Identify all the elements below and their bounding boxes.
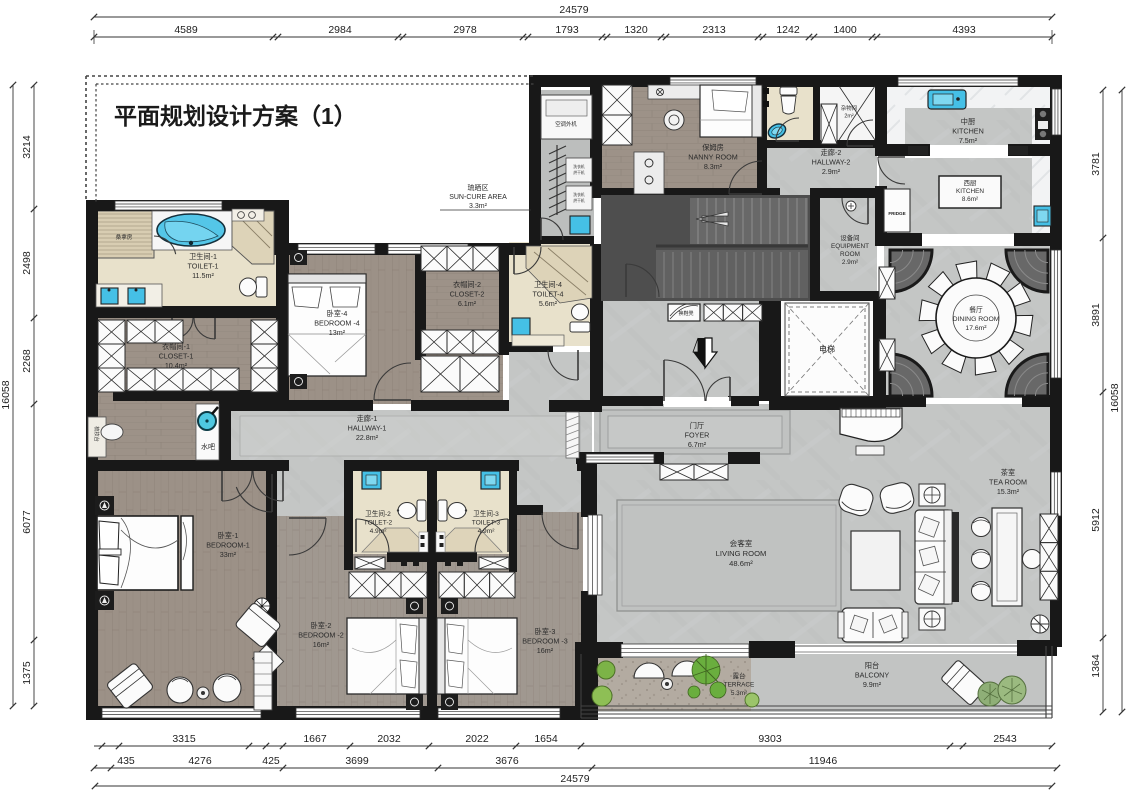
svg-text:衣帽间-2: 衣帽间-2 — [453, 280, 481, 289]
svg-text:BEDROOM -4: BEDROOM -4 — [314, 318, 360, 327]
svg-text:16m²: 16m² — [313, 640, 330, 649]
svg-text:餐厅: 餐厅 — [969, 305, 983, 314]
svg-text:门厅: 门厅 — [690, 421, 704, 430]
svg-text:6.7m²: 6.7m² — [688, 440, 707, 449]
svg-text:中厨: 中厨 — [961, 117, 975, 126]
svg-text:HALLWAY-1: HALLWAY-1 — [348, 423, 387, 432]
svg-text:4589: 4589 — [174, 24, 198, 36]
svg-text:5.3m²: 5.3m² — [731, 690, 747, 697]
svg-text:425: 425 — [262, 755, 280, 767]
svg-text:1375: 1375 — [21, 661, 33, 685]
svg-text:2978: 2978 — [453, 24, 477, 36]
svg-text:卧室-3: 卧室-3 — [535, 627, 556, 636]
svg-text:烘干机: 烘干机 — [573, 170, 585, 175]
svg-text:13m²: 13m² — [329, 328, 346, 337]
svg-text:KITCHEN: KITCHEN — [956, 188, 984, 195]
svg-text:平面规划设计方案（1）: 平面规划设计方案（1） — [114, 103, 357, 129]
svg-text:空调外机: 空调外机 — [555, 120, 577, 128]
svg-text:烘干机: 烘干机 — [573, 198, 585, 203]
svg-text:2022: 2022 — [465, 733, 489, 745]
svg-text:435: 435 — [117, 755, 135, 767]
svg-text:24579: 24579 — [559, 4, 588, 16]
svg-text:卫生间-2: 卫生间-2 — [365, 509, 391, 518]
svg-text:水吧: 水吧 — [201, 442, 215, 451]
svg-text:1364: 1364 — [1090, 654, 1102, 678]
svg-text:FOYER: FOYER — [685, 430, 710, 439]
svg-text:4393: 4393 — [952, 24, 976, 36]
svg-text:琉晒区: 琉晒区 — [468, 183, 489, 192]
svg-text:9303: 9303 — [758, 733, 782, 745]
svg-text:桑拿房: 桑拿房 — [116, 233, 133, 241]
svg-text:3214: 3214 — [21, 135, 33, 159]
svg-text:SUN-CURE AREA: SUN-CURE AREA — [449, 194, 507, 201]
svg-text:24579: 24579 — [560, 773, 589, 785]
svg-text:1400: 1400 — [833, 24, 857, 36]
svg-text:EQUIPMENT: EQUIPMENT — [831, 243, 869, 250]
svg-text:3781: 3781 — [1090, 152, 1102, 176]
svg-text:茶室: 茶室 — [1001, 468, 1015, 477]
svg-text:TERRACE: TERRACE — [724, 681, 755, 688]
svg-text:露台: 露台 — [733, 671, 746, 680]
svg-text:16058: 16058 — [0, 380, 12, 409]
svg-text:5912: 5912 — [1090, 508, 1102, 532]
svg-text:BEDROOM-1: BEDROOM-1 — [206, 540, 250, 549]
svg-text:TOILET-2: TOILET-2 — [364, 520, 393, 527]
svg-text:洗衣机: 洗衣机 — [573, 192, 585, 197]
svg-text:2498: 2498 — [21, 251, 33, 275]
svg-text:1667: 1667 — [303, 733, 327, 745]
svg-text:卫生间-1: 卫生间-1 — [189, 252, 217, 261]
svg-text:15.3m²: 15.3m² — [997, 487, 1020, 496]
svg-text:CLOSET-2: CLOSET-2 — [450, 289, 485, 298]
svg-text:TOILET-3: TOILET-3 — [472, 520, 501, 527]
svg-text:电梯: 电梯 — [819, 344, 835, 354]
svg-text:48.6m²: 48.6m² — [729, 559, 753, 568]
svg-text:1320: 1320 — [624, 24, 648, 36]
svg-text:4.9m²: 4.9m² — [478, 528, 496, 535]
svg-text:16m²: 16m² — [537, 646, 554, 655]
svg-text:FRIDGE: FRIDGE — [888, 211, 905, 216]
svg-text:9.9m²: 9.9m² — [863, 680, 882, 689]
svg-text:1654: 1654 — [534, 733, 558, 745]
svg-text:2543: 2543 — [993, 733, 1017, 745]
svg-text:KITCHEN: KITCHEN — [952, 126, 984, 135]
svg-text:CLOSET-1: CLOSET-1 — [159, 351, 194, 360]
svg-text:6.1m²: 6.1m² — [458, 299, 477, 308]
svg-text:保姆房: 保姆房 — [702, 143, 724, 152]
svg-text:洗衣机: 洗衣机 — [573, 164, 585, 169]
svg-text:2m²: 2m² — [844, 114, 853, 120]
svg-text:8.6m²: 8.6m² — [962, 196, 978, 203]
svg-text:2313: 2313 — [702, 24, 726, 36]
svg-text:4.9m²: 4.9m² — [370, 528, 388, 535]
svg-text:3891: 3891 — [1090, 303, 1102, 327]
svg-text:BALCONY: BALCONY — [855, 670, 890, 679]
svg-text:换鞋凳: 换鞋凳 — [678, 310, 693, 317]
svg-text:2.9m²: 2.9m² — [842, 259, 858, 266]
svg-text:卧室-1: 卧室-1 — [218, 531, 239, 540]
svg-text:走廊-1: 走廊-1 — [357, 414, 378, 423]
svg-text:2.9m²: 2.9m² — [822, 167, 841, 176]
svg-text:11.5m²: 11.5m² — [192, 271, 214, 280]
svg-text:3676: 3676 — [495, 755, 519, 767]
svg-text:会客室: 会客室 — [730, 538, 753, 548]
svg-text:BEDROOM -2: BEDROOM -2 — [298, 630, 344, 639]
svg-text:走廊-2: 走廊-2 — [821, 148, 842, 157]
svg-text:10.4m²: 10.4m² — [165, 361, 188, 370]
svg-text:2032: 2032 — [377, 733, 401, 745]
svg-text:2268: 2268 — [21, 349, 33, 373]
svg-text:设备间: 设备间 — [840, 233, 859, 242]
svg-text:3315: 3315 — [172, 733, 196, 745]
svg-text:3.3m²: 3.3m² — [469, 203, 488, 210]
svg-text:17.6m²: 17.6m² — [965, 325, 987, 332]
svg-text:TEA ROOM: TEA ROOM — [989, 477, 1027, 486]
svg-text:6077: 6077 — [21, 510, 33, 534]
svg-text:BEDROOM -3: BEDROOM -3 — [522, 636, 568, 645]
svg-text:16058: 16058 — [1109, 383, 1121, 412]
svg-text:1793: 1793 — [555, 24, 579, 36]
svg-text:梳妆台: 梳妆台 — [93, 426, 101, 442]
svg-text:4276: 4276 — [188, 755, 212, 767]
svg-text:卫生间-3: 卫生间-3 — [473, 509, 499, 518]
svg-text:TOILET-1: TOILET-1 — [187, 261, 218, 270]
svg-text:5.6m²: 5.6m² — [539, 299, 558, 308]
svg-text:DINING ROOM: DINING ROOM — [953, 316, 1000, 323]
svg-text:33m²: 33m² — [220, 550, 237, 559]
svg-text:2984: 2984 — [328, 24, 352, 36]
svg-text:HALLWAY-2: HALLWAY-2 — [812, 157, 851, 166]
svg-text:卫生间-4: 卫生间-4 — [534, 280, 562, 289]
svg-text:ROOM: ROOM — [840, 251, 860, 258]
svg-text:阳台: 阳台 — [865, 661, 879, 670]
svg-text:TOILET-4: TOILET-4 — [532, 289, 563, 298]
svg-text:11946: 11946 — [809, 755, 838, 767]
svg-text:1242: 1242 — [776, 24, 800, 36]
svg-text:卧室-2: 卧室-2 — [311, 621, 332, 630]
svg-text:卧室-4: 卧室-4 — [327, 309, 348, 318]
svg-text:LIVING ROOM: LIVING ROOM — [716, 549, 767, 558]
svg-text:衣帽间-1: 衣帽间-1 — [162, 342, 190, 351]
svg-text:3699: 3699 — [345, 755, 369, 767]
svg-text:杂物间: 杂物间 — [841, 104, 857, 112]
svg-text:7.5m²: 7.5m² — [959, 136, 978, 145]
svg-text:22.8m²: 22.8m² — [356, 433, 379, 442]
svg-text:西厨: 西厨 — [964, 179, 977, 187]
svg-text:NANNY ROOM: NANNY ROOM — [688, 152, 737, 161]
svg-text:8.3m²: 8.3m² — [704, 162, 723, 171]
